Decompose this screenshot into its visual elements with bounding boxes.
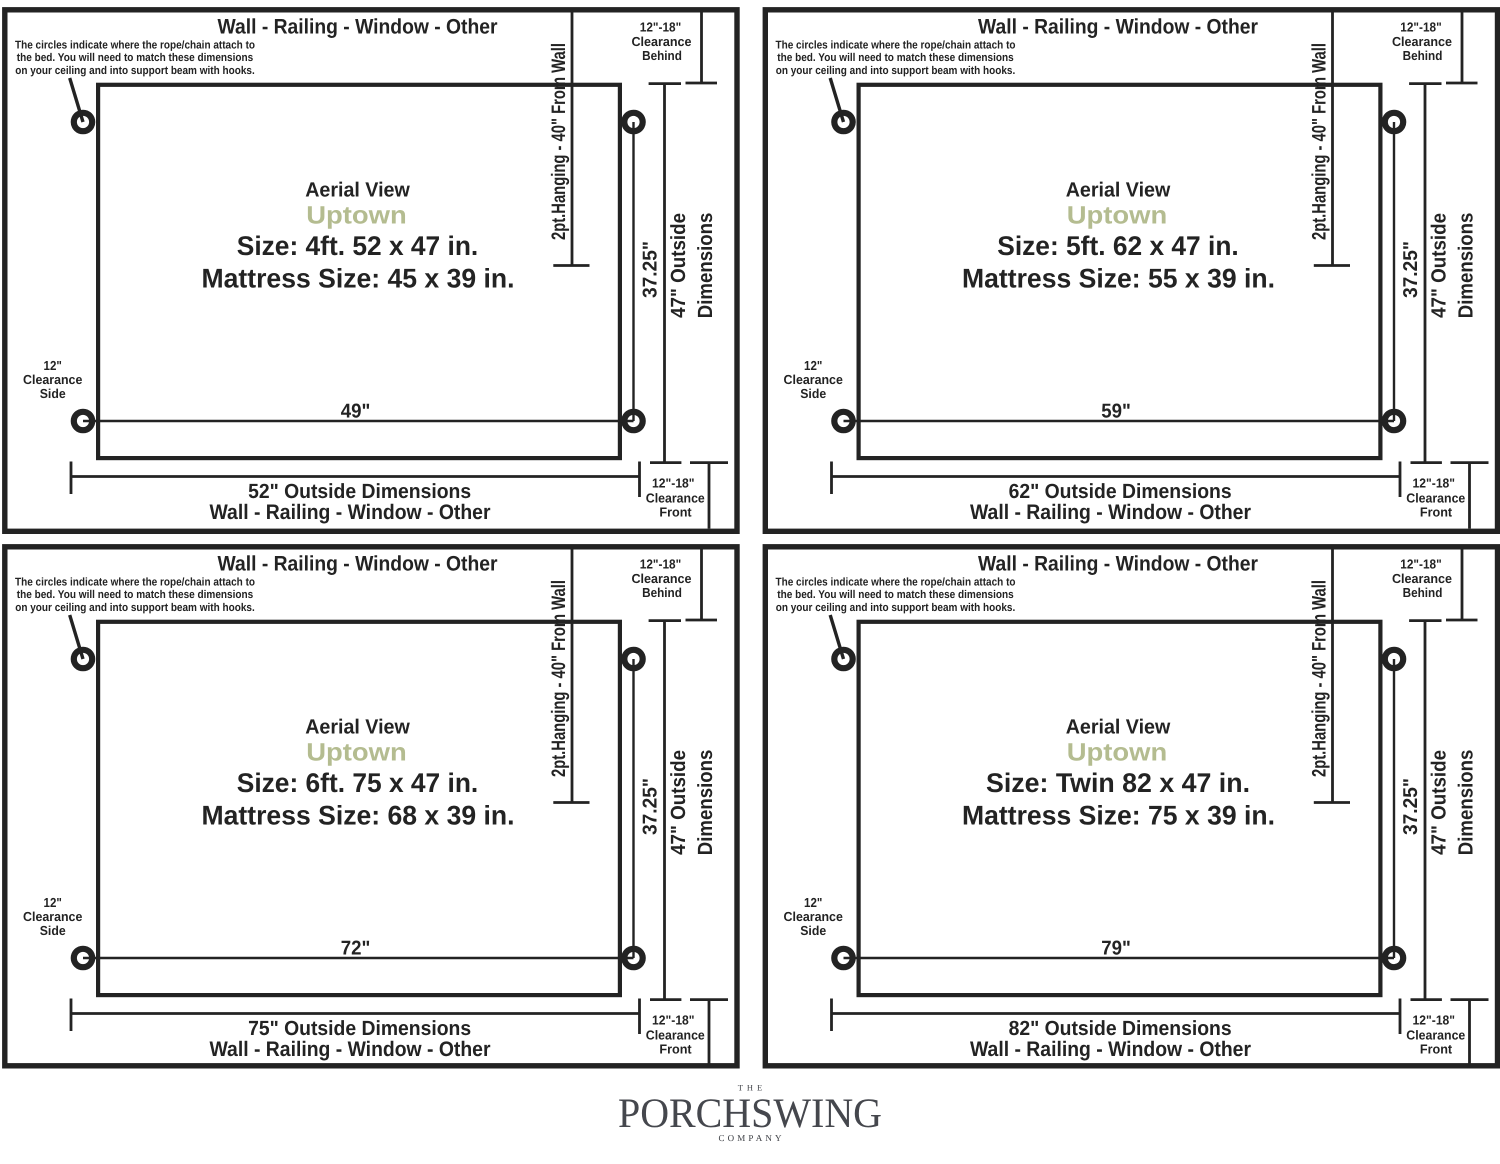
svg-text:Front: Front [1420, 504, 1453, 519]
svg-text:37.25": 37.25" [1400, 241, 1422, 298]
svg-text:Clearance: Clearance [1406, 490, 1465, 505]
svg-text:Dimensions: Dimensions [1454, 213, 1477, 319]
svg-text:Mattress Size: 55 x 39 in.: Mattress Size: 55 x 39 in. [962, 264, 1275, 294]
svg-text:12"-18": 12"-18" [1400, 557, 1441, 572]
svg-text:on your ceiling and into suppo: on your ceiling and into support beam wi… [776, 65, 1016, 77]
svg-text:Wall - Railing - Window - Othe: Wall - Railing - Window - Other [978, 553, 1258, 576]
svg-text:Clearance: Clearance [646, 1027, 705, 1042]
svg-text:Aerial View: Aerial View [1066, 179, 1171, 202]
svg-text:Side: Side [40, 386, 66, 401]
svg-text:2pt.Hanging - 40" From Wall: 2pt.Hanging - 40" From Wall [548, 43, 570, 240]
svg-text:Behind: Behind [642, 585, 682, 600]
svg-text:72": 72" [341, 938, 371, 960]
svg-text:2pt.Hanging - 40" From Wall: 2pt.Hanging - 40" From Wall [1309, 580, 1331, 777]
svg-text:Behind: Behind [1403, 585, 1443, 600]
svg-text:12"-18": 12"-18" [640, 557, 681, 572]
svg-text:Clearance: Clearance [1392, 571, 1452, 586]
svg-text:Wall - Railing - Window - Othe: Wall - Railing - Window - Other [210, 501, 491, 524]
svg-text:the bed. You will need to matc: the bed. You will need to match these di… [777, 589, 1014, 601]
svg-text:Dimensions: Dimensions [694, 213, 717, 319]
svg-text:Aerial View: Aerial View [305, 179, 410, 202]
svg-text:Behind: Behind [642, 48, 682, 63]
svg-text:79": 79" [1101, 938, 1131, 960]
svg-text:Uptown: Uptown [1067, 202, 1168, 230]
svg-text:Wall - Railing - Window - Othe: Wall - Railing - Window - Other [978, 16, 1258, 39]
svg-text:12": 12" [804, 358, 822, 373]
svg-text:The circles indicate where the: The circles indicate where the rope/chai… [15, 40, 255, 52]
svg-text:Front: Front [1420, 1041, 1453, 1056]
svg-text:Uptown: Uptown [1067, 739, 1168, 767]
svg-text:Clearance: Clearance [1406, 1027, 1465, 1042]
svg-text:12"-18": 12"-18" [1413, 476, 1456, 491]
svg-text:Wall - Railing - Window - Othe: Wall - Railing - Window - Other [218, 16, 498, 39]
svg-text:2pt.Hanging - 40" From Wall: 2pt.Hanging - 40" From Wall [1309, 43, 1331, 240]
svg-text:12"-18": 12"-18" [652, 476, 695, 491]
svg-text:Clearance: Clearance [631, 571, 691, 586]
svg-text:47" Outside: 47" Outside [667, 750, 690, 855]
svg-text:Size: 5ft. 62 x 47 in.: Size: 5ft. 62 x 47 in. [997, 231, 1239, 261]
svg-text:47" Outside: 47" Outside [1427, 213, 1450, 318]
svg-text:Wall - Railing - Window - Othe: Wall - Railing - Window - Other [970, 501, 1251, 524]
svg-text:12"-18": 12"-18" [1400, 20, 1441, 35]
svg-text:82" Outside Dimensions: 82" Outside Dimensions [1009, 1017, 1232, 1040]
svg-text:Dimensions: Dimensions [1454, 750, 1477, 856]
svg-text:on your ceiling and into suppo: on your ceiling and into support beam wi… [776, 602, 1016, 614]
svg-text:Behind: Behind [1403, 48, 1443, 63]
svg-text:75" Outside Dimensions: 75" Outside Dimensions [248, 1017, 471, 1040]
svg-text:the bed. You will need to matc: the bed. You will need to match these di… [17, 589, 254, 601]
svg-text:the bed. You will need to matc: the bed. You will need to match these di… [777, 52, 1014, 64]
svg-text:Uptown: Uptown [306, 739, 407, 767]
svg-text:on your ceiling and into suppo: on your ceiling and into support beam wi… [15, 65, 255, 77]
svg-text:Mattress Size: 68 x 39 in.: Mattress Size: 68 x 39 in. [202, 801, 515, 831]
svg-text:the bed. You will need to matc: the bed. You will need to match these di… [17, 52, 254, 64]
svg-text:Mattress Size: 45 x 39 in.: Mattress Size: 45 x 39 in. [202, 264, 515, 294]
svg-text:12": 12" [804, 895, 822, 910]
svg-text:59": 59" [1101, 401, 1131, 423]
svg-text:Clearance: Clearance [631, 34, 691, 49]
svg-text:Side: Side [800, 386, 826, 401]
svg-text:Mattress Size: 75 x 39 in.: Mattress Size: 75 x 39 in. [962, 801, 1275, 831]
svg-text:62" Outside Dimensions: 62" Outside Dimensions [1009, 480, 1232, 503]
svg-text:Wall - Railing - Window - Othe: Wall - Railing - Window - Other [970, 1038, 1251, 1061]
svg-text:Side: Side [40, 923, 66, 938]
svg-text:37.25": 37.25" [639, 778, 661, 835]
svg-text:12"-18": 12"-18" [1413, 1013, 1456, 1028]
svg-text:37.25": 37.25" [639, 241, 661, 298]
svg-text:Front: Front [659, 504, 692, 519]
svg-text:12": 12" [44, 895, 62, 910]
svg-text:Clearance: Clearance [646, 490, 705, 505]
svg-text:on your ceiling and into suppo: on your ceiling and into support beam wi… [15, 602, 255, 614]
svg-text:Size: 6ft. 75 x 47 in.: Size: 6ft. 75 x 47 in. [237, 768, 479, 798]
svg-text:Size: Twin 82 x 47 in.: Size: Twin 82 x 47 in. [986, 768, 1250, 798]
svg-text:Side: Side [800, 923, 826, 938]
svg-text:Size: 4ft. 52 x 47 in.: Size: 4ft. 52 x 47 in. [237, 231, 479, 261]
svg-text:The circles indicate where the: The circles indicate where the rope/chai… [776, 40, 1016, 52]
svg-text:The circles indicate where the: The circles indicate where the rope/chai… [776, 577, 1016, 589]
svg-text:Clearance: Clearance [1392, 34, 1452, 49]
svg-text:Dimensions: Dimensions [694, 750, 717, 856]
svg-text:12": 12" [44, 358, 62, 373]
svg-text:49": 49" [341, 401, 371, 423]
svg-text:52" Outside Dimensions: 52" Outside Dimensions [248, 480, 471, 503]
svg-text:Wall - Railing - Window - Othe: Wall - Railing - Window - Other [218, 553, 498, 576]
svg-text:2pt.Hanging - 40" From Wall: 2pt.Hanging - 40" From Wall [548, 580, 570, 777]
svg-text:Front: Front [659, 1041, 692, 1056]
svg-text:Aerial View: Aerial View [1066, 716, 1171, 739]
svg-text:12"-18": 12"-18" [640, 20, 681, 35]
svg-text:PORCHSWING: PORCHSWING [618, 1091, 882, 1137]
svg-text:47" Outside: 47" Outside [667, 213, 690, 318]
svg-text:37.25": 37.25" [1400, 778, 1422, 835]
svg-text:47" Outside: 47" Outside [1427, 750, 1450, 855]
svg-text:The circles indicate where the: The circles indicate where the rope/chai… [15, 577, 255, 589]
svg-text:Uptown: Uptown [306, 202, 407, 230]
svg-text:Aerial View: Aerial View [305, 716, 410, 739]
svg-text:Wall - Railing - Window - Othe: Wall - Railing - Window - Other [210, 1038, 491, 1061]
svg-text:12"-18": 12"-18" [652, 1013, 695, 1028]
